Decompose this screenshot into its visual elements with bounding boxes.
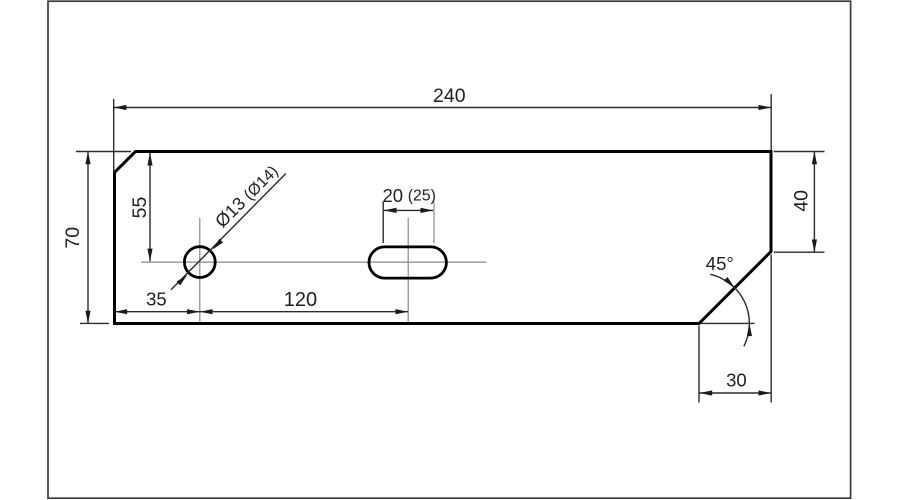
svg-text:55: 55 xyxy=(129,197,151,219)
svg-text:40: 40 xyxy=(790,190,812,212)
svg-text:70: 70 xyxy=(62,227,84,249)
svg-text:35: 35 xyxy=(146,288,167,309)
svg-text:240: 240 xyxy=(433,85,466,107)
svg-text:20: 20 xyxy=(383,185,404,206)
svg-text:(25): (25) xyxy=(408,188,436,205)
svg-text:30: 30 xyxy=(726,369,747,390)
svg-text:120: 120 xyxy=(284,289,317,311)
svg-text:45°: 45° xyxy=(706,253,734,274)
